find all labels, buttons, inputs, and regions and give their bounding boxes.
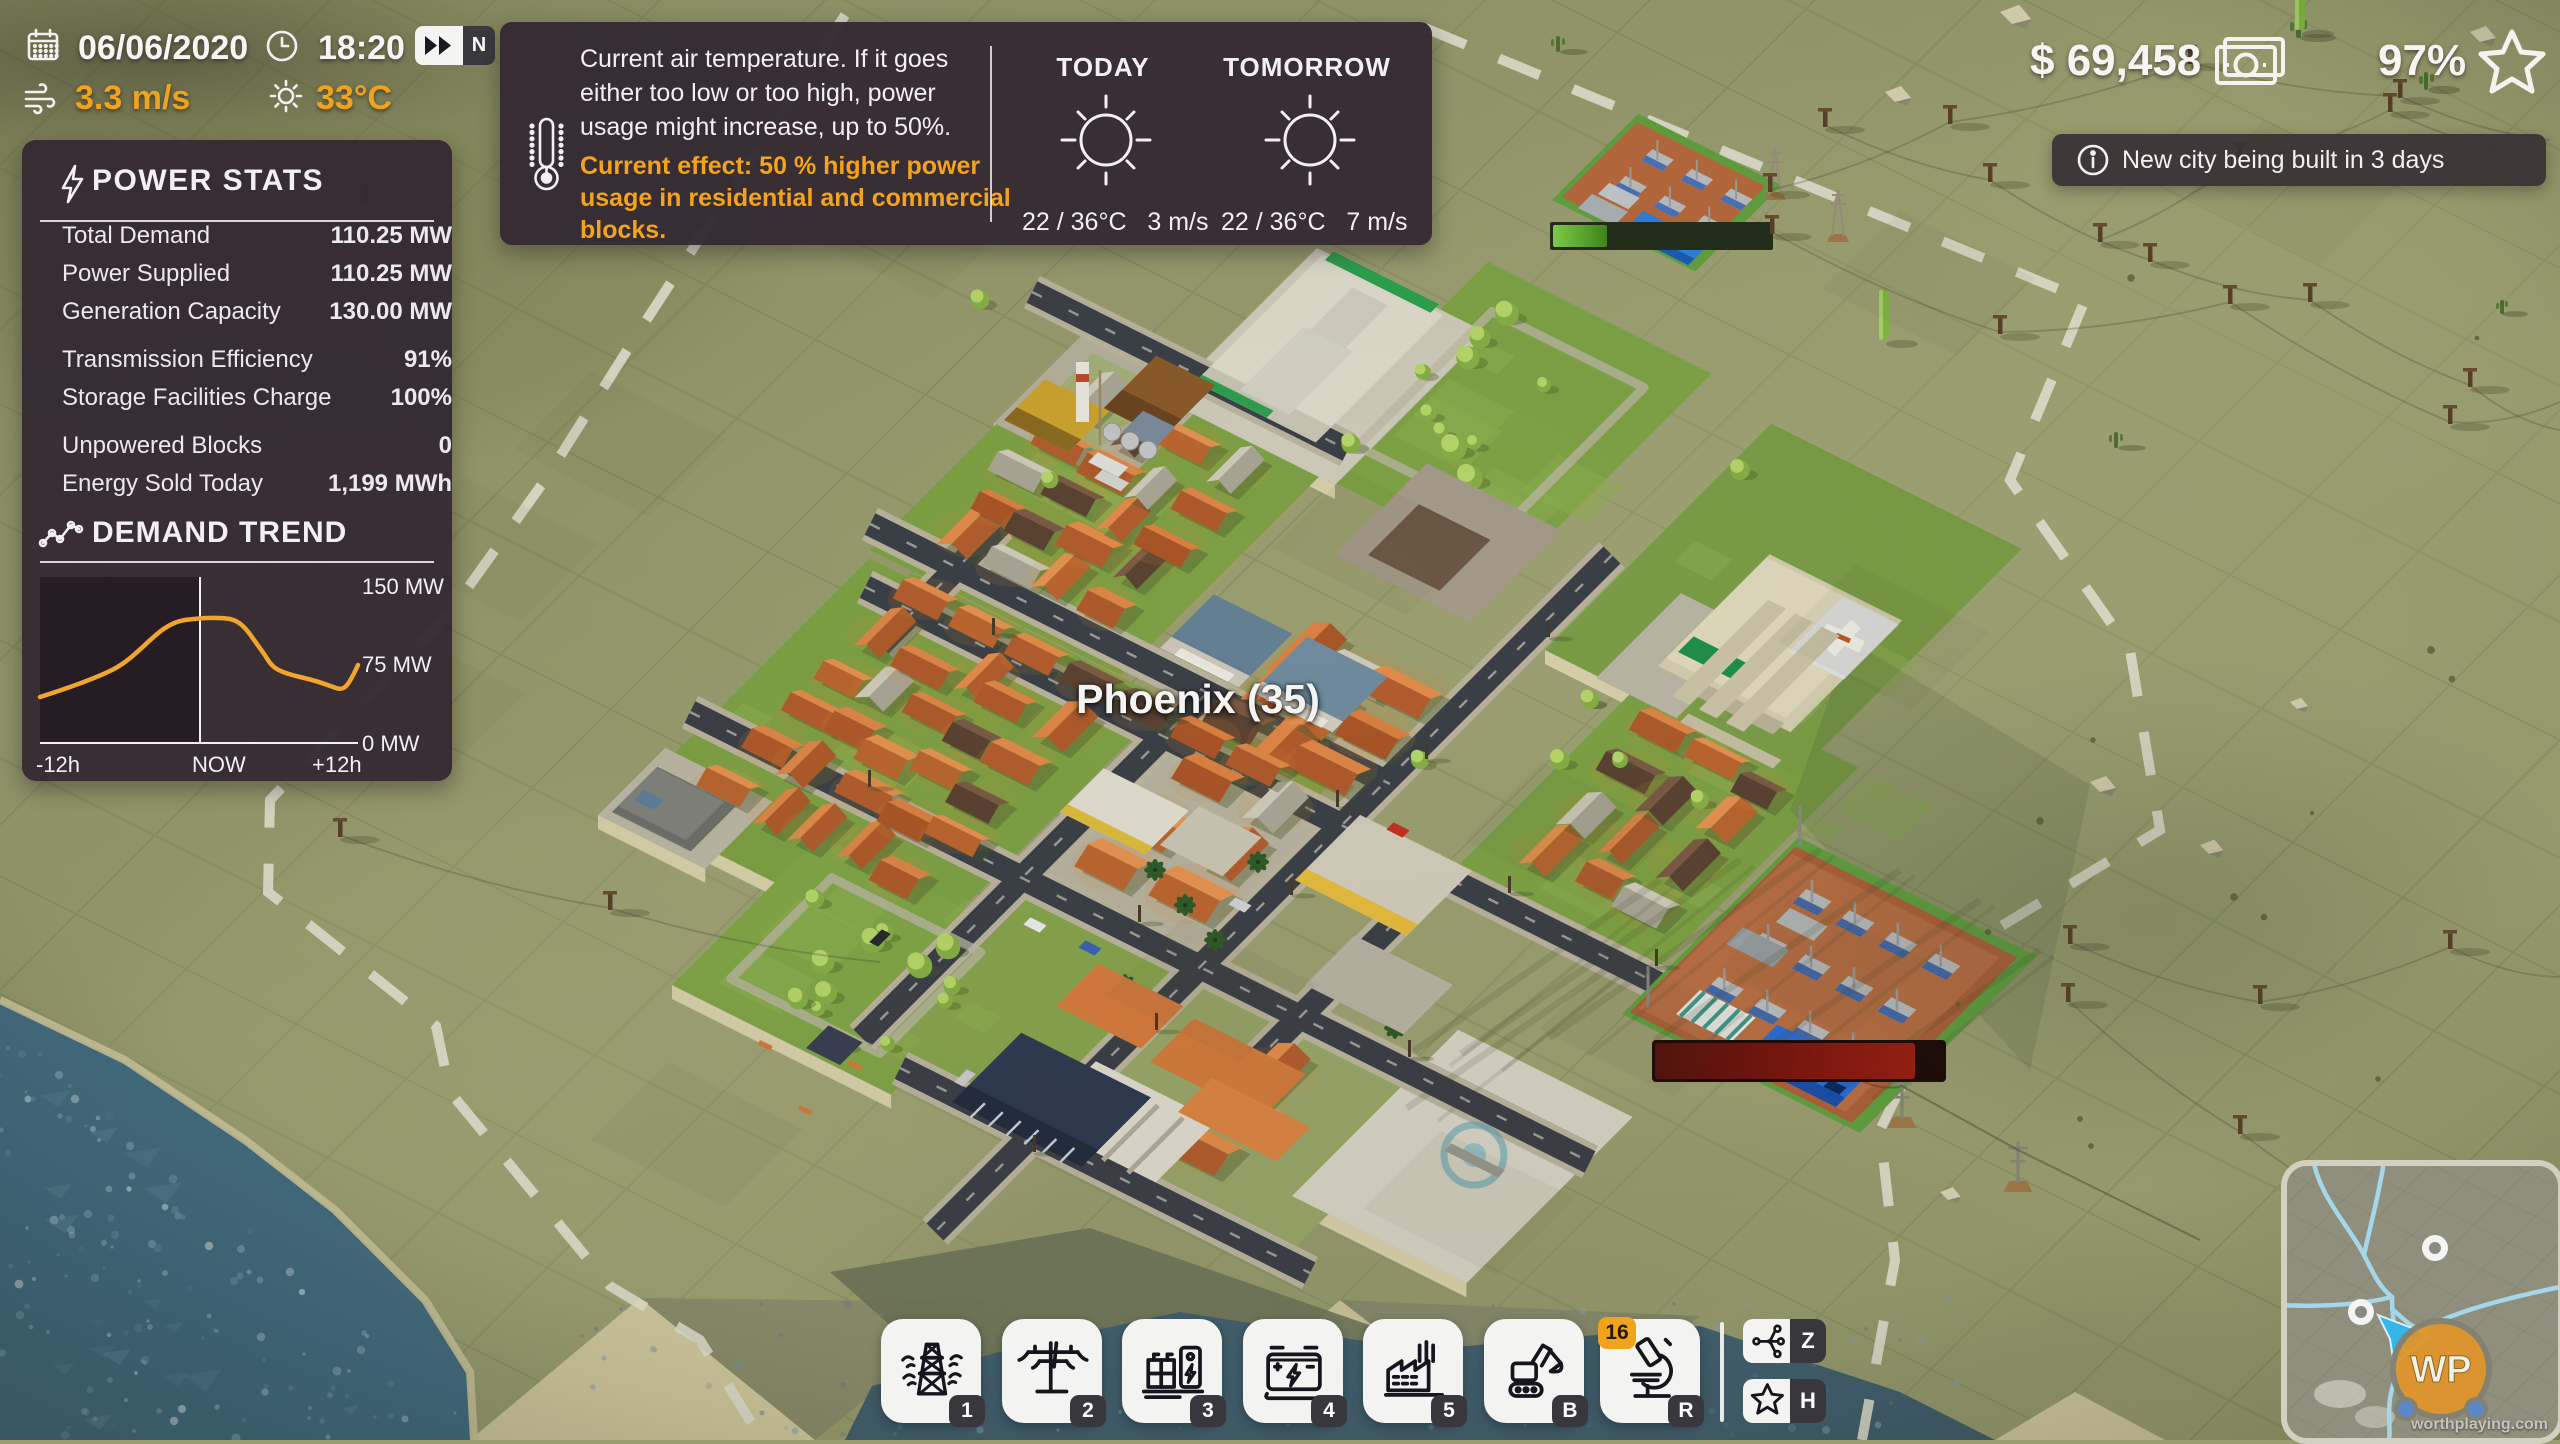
svg-text:WP: WP <box>2410 1349 2471 1391</box>
